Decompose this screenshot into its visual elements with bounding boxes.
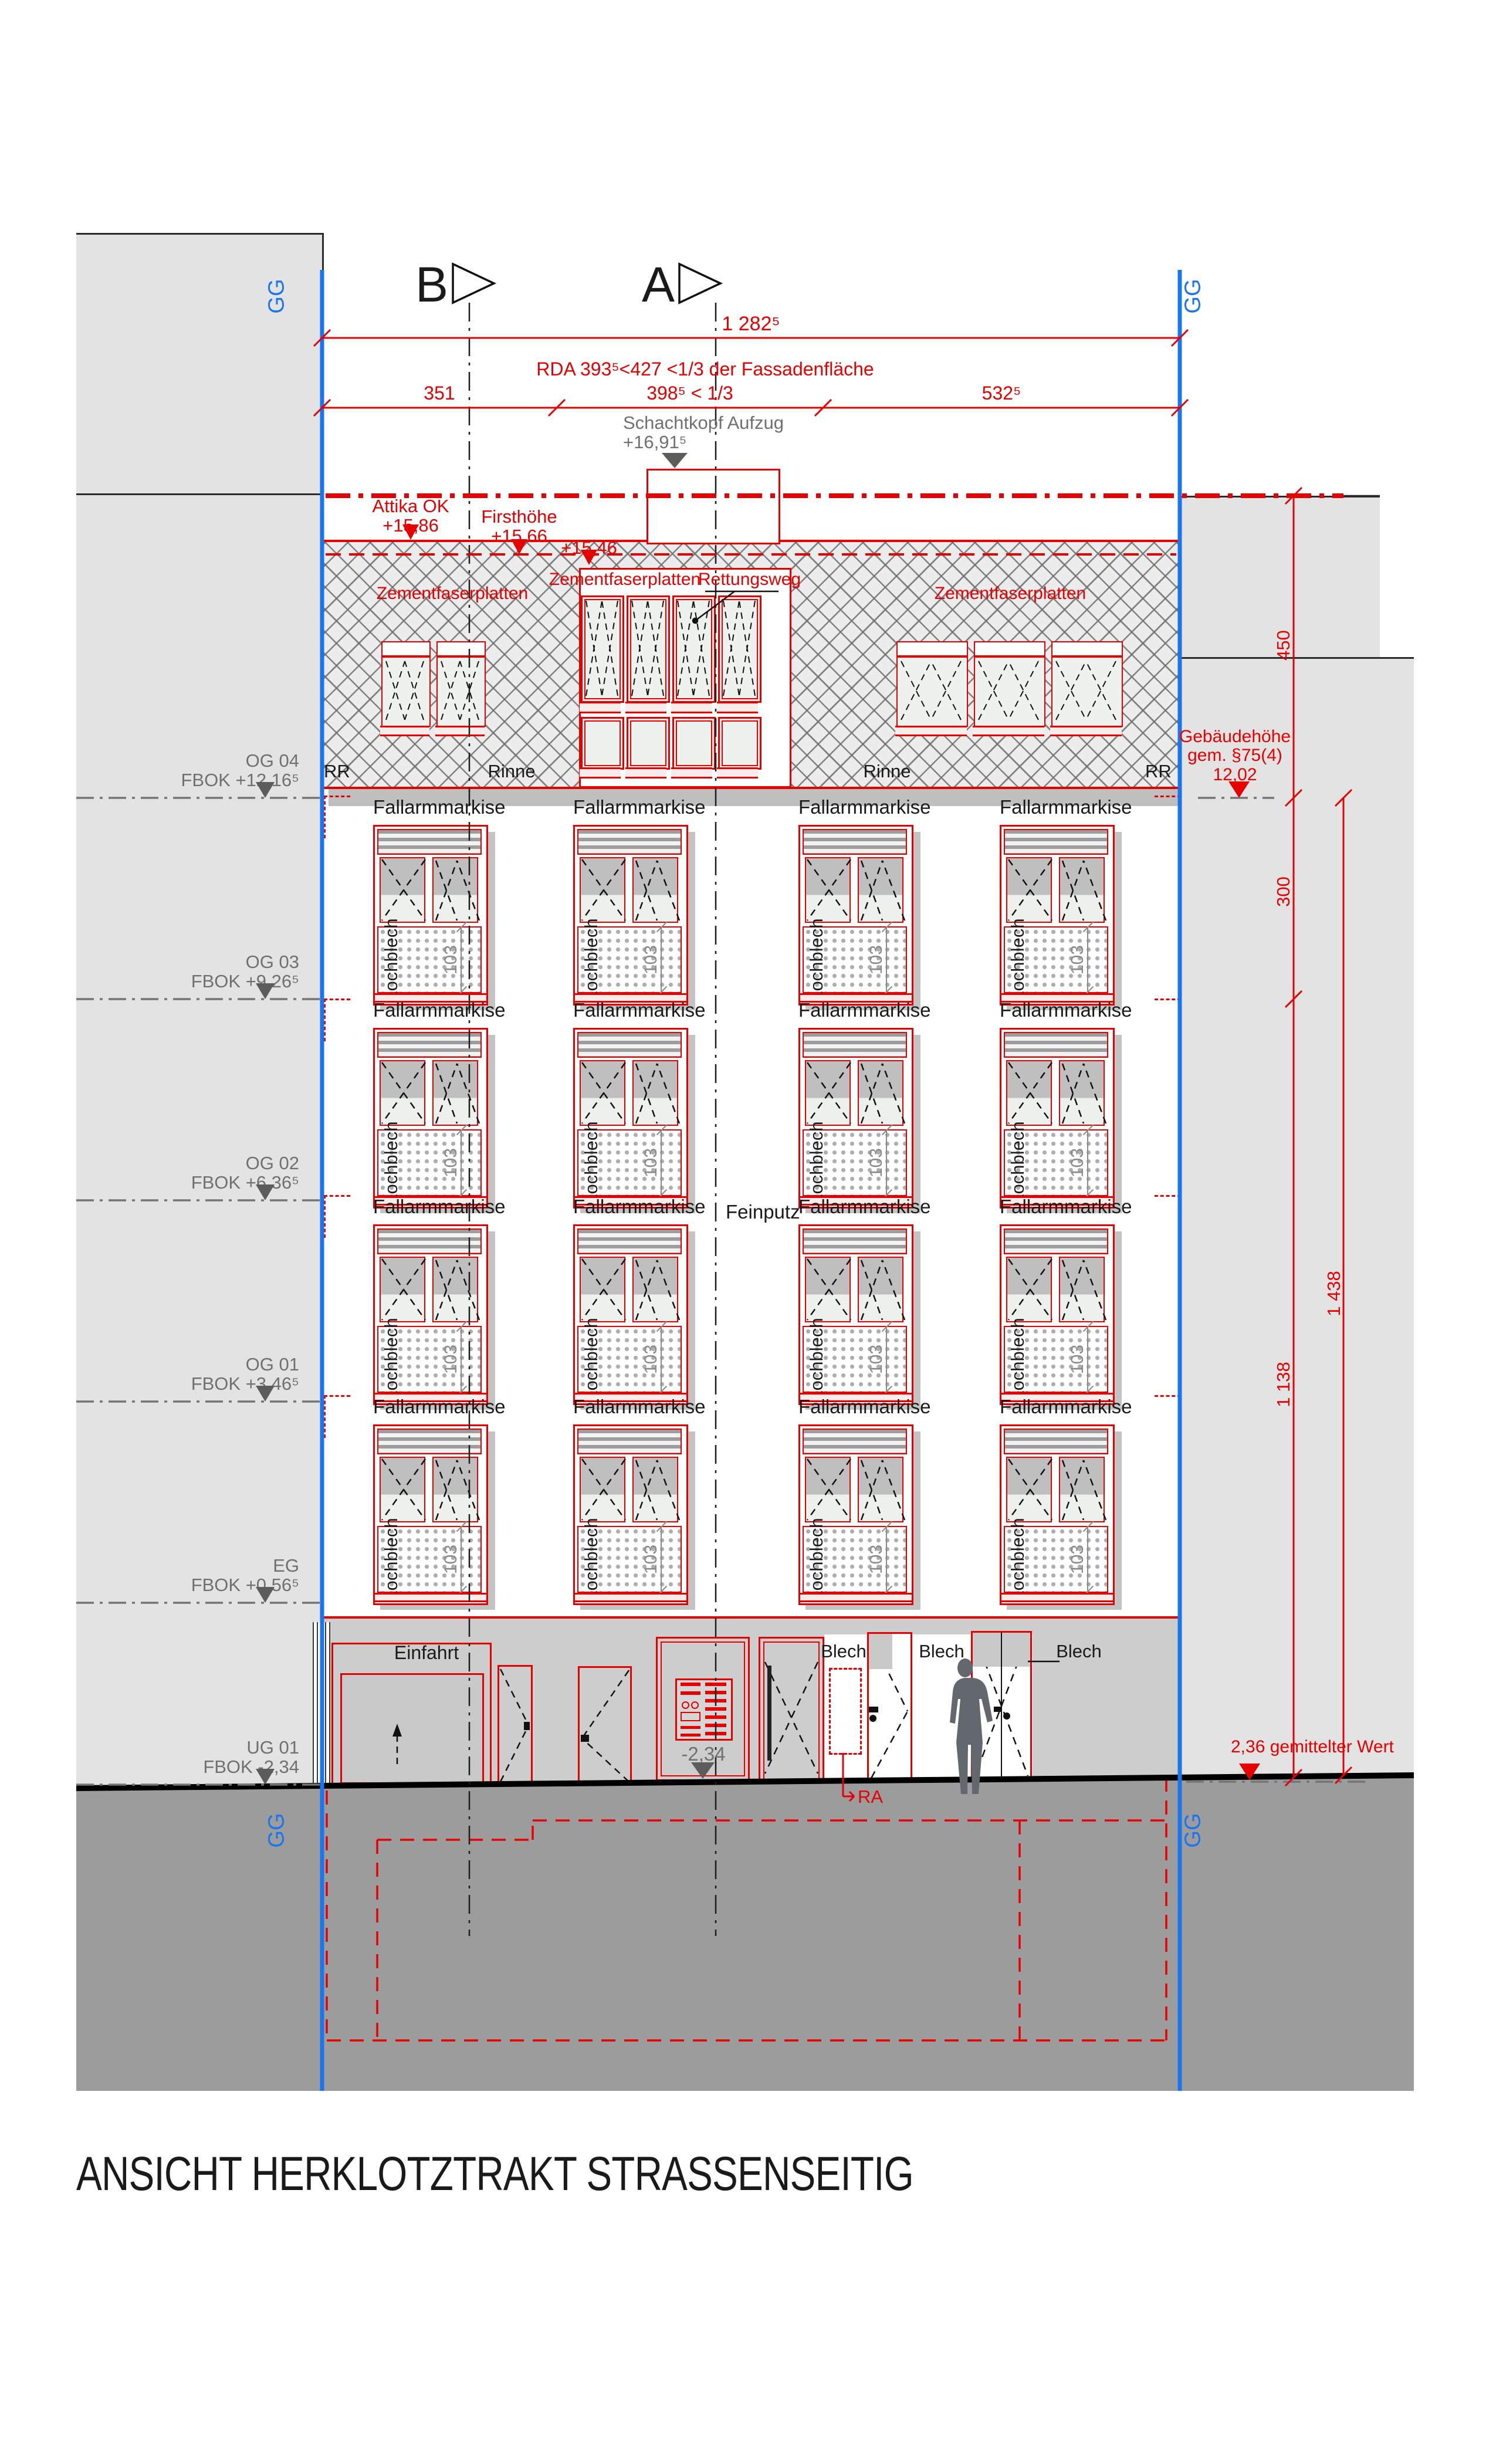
section-marker-b-icon	[453, 264, 494, 303]
dim-1438: 1 438	[1324, 1271, 1345, 1316]
window-dim-label: 103	[641, 1345, 661, 1374]
rr-left-label: RR	[324, 761, 350, 781]
awning-label: Fallarmmarkise	[798, 1000, 913, 1021]
blech-label-1: Blech	[803, 1641, 885, 1661]
perforated-label: Lochblech	[806, 1121, 827, 1204]
perforated-panel: Lochblech 103	[577, 1526, 682, 1593]
dim-rda-note: RDA 393⁵<427 <1/3 der Fassadenfläche	[500, 359, 911, 380]
perforated-panel: Lochblech 103	[577, 926, 682, 993]
opening-symbols-icon	[577, 856, 684, 924]
door-single-2	[578, 1666, 632, 1786]
window-sill	[575, 1593, 686, 1602]
awning-box-icon	[1004, 1429, 1108, 1454]
cladding-left-label: Zementfaserplatten	[364, 584, 540, 603]
facade-window-unit: Fallarmmarkise Lochblech 103	[798, 797, 913, 1006]
awning-box-icon	[377, 1429, 482, 1454]
level-eave: +15,46	[530, 538, 648, 557]
awning-label: Fallarmmarkise	[798, 1396, 913, 1417]
window-dim-label: 103	[441, 1545, 461, 1574]
grid-label-bottom-left: GG	[265, 1813, 290, 1847]
awning-label: Fallarmmarkise	[1000, 1396, 1115, 1417]
opening-symbols-icon	[377, 856, 484, 924]
awning-label: Fallarmmarkise	[573, 1396, 688, 1417]
window-box: Lochblech 103	[573, 1224, 688, 1405]
awning-box-icon	[577, 1032, 682, 1058]
facade-window-unit: Fallarmmarkise Lochblech 103	[373, 797, 488, 1006]
awning-box-icon	[577, 829, 682, 855]
awning-box-icon	[377, 829, 482, 855]
facade-window-unit: Fallarmmarkise Lochblech 103	[573, 1396, 688, 1605]
window-dim-label: 103	[1068, 1545, 1088, 1574]
perforated-label: Lochblech	[1007, 1518, 1028, 1600]
perforated-panel: Lochblech 103	[577, 1326, 682, 1393]
section-letter-b: B	[411, 258, 448, 312]
neighbour-left-parapet-line	[76, 493, 322, 495]
window-dim-label: 103	[641, 1148, 661, 1177]
window-box: Lochblech 103	[373, 1224, 488, 1405]
floor-marker: UG 01 FBOK -2,34	[88, 1738, 323, 1787]
facade-window-unit: Fallarmmarkise Lochblech 103	[1000, 1196, 1115, 1405]
opening-symbols-icon	[803, 856, 909, 924]
perforated-panel: Lochblech 103	[1004, 1526, 1108, 1593]
facade-window-unit: Fallarmmarkise Lochblech 103	[373, 1396, 488, 1605]
facade-window-unit: Fallarmmarkise Lochblech 103	[373, 1000, 488, 1209]
perforated-label: Lochblech	[581, 1318, 602, 1400]
window-dim-label: 103	[441, 1148, 461, 1177]
window-dim-label: 103	[1068, 945, 1088, 974]
attic-center-window	[672, 595, 715, 777]
awning-label: Fallarmmarkise	[798, 1196, 913, 1217]
window-dim-label: 103	[641, 945, 661, 974]
attic-center-window	[581, 595, 623, 777]
awning-box-icon	[803, 1032, 907, 1058]
dim-seg-right: 532⁵	[913, 383, 1089, 404]
perforated-panel: Lochblech 103	[377, 926, 482, 993]
window-box: Lochblech 103	[798, 1424, 913, 1605]
perforated-panel: Lochblech 103	[377, 1526, 482, 1593]
ra-label: RA	[858, 1787, 883, 1806]
window-box: Lochblech 103	[373, 825, 488, 1006]
level-attika: Attika OK +15,86	[352, 496, 469, 536]
facade-window-unit: Fallarmmarkise Lochblech 103	[573, 1196, 688, 1405]
facade-window-unit: Fallarmmarkise Lochblech 103	[1000, 797, 1115, 1006]
dim-seg-left: 351	[381, 383, 498, 404]
shaft-head-label: Schachtkopf Aufzug +16,91⁵	[623, 413, 784, 452]
letterbox-panel	[675, 1678, 733, 1741]
section-letter-a: A	[637, 258, 675, 312]
perforated-label: Lochblech	[381, 1318, 402, 1400]
floor-level-triangle	[256, 983, 275, 999]
garage-door	[340, 1673, 484, 1784]
attic-window	[436, 641, 486, 736]
entry-label: Einfahrt	[368, 1643, 485, 1663]
perforated-label: Lochblech	[1007, 918, 1028, 1001]
opening-symbols-icon	[1004, 1059, 1111, 1127]
awning-box-icon	[1004, 1228, 1108, 1254]
window-dim-label: 103	[1068, 1148, 1088, 1177]
window-dim-label: 103	[441, 1345, 461, 1374]
opening-symbols-icon	[1004, 1456, 1111, 1524]
floor-marker: OG 01 FBOK +3,46⁵	[88, 1355, 323, 1404]
opening-symbols-icon	[577, 1456, 684, 1524]
facade-window-unit: Fallarmmarkise Lochblech 103	[1000, 1396, 1115, 1605]
floor-level-triangle	[256, 1184, 275, 1200]
floor-marker: OG 04 FBOK +12,16⁵	[88, 751, 323, 800]
awning-box-icon	[803, 829, 907, 855]
floor-edge-mark	[1155, 999, 1181, 1041]
perforated-label: Lochblech	[806, 918, 827, 1001]
awning-box-icon	[377, 1032, 482, 1058]
window-box: Lochblech 103	[373, 1028, 488, 1209]
awning-label: Fallarmmarkise	[373, 1196, 488, 1217]
perforated-label: Lochblech	[381, 1121, 402, 1204]
awning-label: Fallarmmarkise	[573, 1196, 688, 1217]
window-box: Lochblech 103	[573, 1424, 688, 1605]
dim-seg-mid: 398⁵ < 1/3	[602, 383, 778, 404]
blech-label-3: Blech	[1038, 1641, 1120, 1661]
attic-center-window	[627, 595, 669, 777]
window-dim-label: 103	[641, 1545, 661, 1574]
floor-level-triangle	[256, 782, 275, 798]
window-dim-label: 103	[867, 1545, 886, 1574]
neighbour-building-right-lower	[1180, 657, 1414, 1779]
facade-window-unit: Fallarmmarkise Lochblech 103	[798, 1000, 913, 1209]
page-title: ANSICHT HERKLOTZTRAKT STRASSENSEITIG	[76, 2148, 913, 2201]
window-box: Lochblech 103	[798, 825, 913, 1006]
grid-label-top-right: GG	[1181, 279, 1206, 313]
attic-window	[1051, 641, 1123, 736]
basement-outline	[327, 1778, 1166, 2040]
window-box: Lochblech 103	[1000, 1028, 1115, 1209]
elevator-shaft-head	[647, 469, 780, 544]
attic-window	[974, 641, 1045, 736]
gutter-left-label: Rinne	[476, 761, 547, 781]
facade-window-unit: Fallarmmarkise Lochblech 103	[573, 797, 688, 1006]
perforated-label: Lochblech	[806, 1518, 827, 1600]
dim-450: 450	[1273, 630, 1294, 661]
window-box: Lochblech 103	[573, 1028, 688, 1209]
perforated-panel: Lochblech 103	[803, 1526, 907, 1593]
floor-level-triangle	[256, 1587, 275, 1603]
perforated-panel: Lochblech 103	[1004, 1129, 1108, 1196]
awning-box-icon	[577, 1429, 682, 1454]
floor-edge-mark	[324, 999, 350, 1041]
window-box: Lochblech 103	[1000, 1424, 1115, 1605]
facade-window-unit: Fallarmmarkise Lochblech 103	[373, 1196, 488, 1405]
perforated-panel: Lochblech 103	[803, 1326, 907, 1393]
floor-marker: OG 03 FBOK +9,26⁵	[88, 952, 323, 1001]
floor-edge-mark	[324, 1395, 350, 1438]
dim-total: 1 282⁵	[663, 313, 839, 335]
awning-box-icon	[1004, 1032, 1108, 1058]
attic-window	[896, 641, 968, 736]
opening-symbols-icon	[1004, 1255, 1111, 1324]
floor-edge-mark	[324, 796, 350, 838]
facade-window-unit: Fallarmmarkise Lochblech 103	[798, 1196, 913, 1405]
opening-symbols-icon	[803, 1255, 909, 1324]
perforated-label: Lochblech	[381, 1518, 402, 1600]
awning-label: Fallarmmarkise	[573, 1000, 688, 1021]
dim-300: 300	[1273, 876, 1294, 907]
floor-edge-mark	[1155, 1395, 1181, 1438]
perforated-label: Lochblech	[1007, 1318, 1028, 1400]
plaster-label: Feinputz	[726, 1201, 800, 1223]
opening-symbols-icon	[377, 1456, 484, 1524]
building-height-label: Gebäudehöhe gem. §75(4) 12,02	[1165, 727, 1305, 784]
window-dim-label: 103	[441, 945, 461, 974]
awning-label: Fallarmmarkise	[1000, 797, 1115, 818]
floor-edge-mark	[1155, 796, 1181, 838]
grid-label-bottom-right: GG	[1181, 1813, 1206, 1847]
opening-symbols-icon	[803, 1456, 909, 1524]
awning-box-icon	[803, 1228, 907, 1254]
window-box: Lochblech 103	[1000, 1224, 1115, 1405]
facade-window-unit: Fallarmmarkise Lochblech 103	[573, 1000, 688, 1209]
floor-edge-mark	[1155, 1195, 1181, 1238]
cladding-right-label: Zementfaserplatten	[922, 584, 1098, 603]
window-sill	[1001, 1593, 1113, 1602]
eg-level-label: -2,34	[656, 1744, 750, 1765]
awning-label: Fallarmmarkise	[373, 1000, 488, 1021]
perforated-panel: Lochblech 103	[803, 926, 907, 993]
perforated-panel: Lochblech 103	[803, 1129, 907, 1196]
floor-level-triangle	[256, 1769, 275, 1785]
awning-box-icon	[377, 1228, 482, 1254]
perforated-label: Lochblech	[581, 1518, 602, 1600]
grid-label-top-left: GG	[265, 279, 290, 313]
perforated-label: Lochblech	[806, 1318, 827, 1400]
door-swing-icon	[580, 1668, 630, 1784]
window-dim-label: 103	[867, 1148, 886, 1177]
awning-label: Fallarmmarkise	[1000, 1000, 1115, 1021]
rescue-route-label: Rettungsweg	[698, 570, 786, 589]
awning-box-icon	[577, 1228, 682, 1254]
awning-label: Fallarmmarkise	[373, 1396, 488, 1417]
cladding-center-label: Zementfaserplatten	[540, 570, 710, 589]
window-box: Lochblech 103	[798, 1224, 913, 1405]
window-sill	[375, 1593, 486, 1602]
attic-window	[381, 641, 431, 736]
gutter-right-label: Rinne	[852, 761, 922, 781]
window-dim-label: 103	[1068, 1345, 1088, 1374]
opening-symbols-icon	[577, 1059, 684, 1127]
floor-edge-mark	[324, 1195, 350, 1238]
ra-niche	[829, 1668, 862, 1755]
perforated-panel: Lochblech 103	[1004, 926, 1108, 993]
perforated-panel: Lochblech 103	[1004, 1326, 1108, 1393]
blech-label-2: Blech	[901, 1641, 983, 1661]
ground-note-label: 2,36 gemittelter Wert	[1231, 1738, 1394, 1756]
window-box: Lochblech 103	[798, 1028, 913, 1209]
dim-1138: 1 138	[1273, 1362, 1294, 1407]
door-single-1	[497, 1665, 533, 1786]
window-sill	[800, 1593, 912, 1602]
perforated-label: Lochblech	[581, 918, 602, 1001]
floor-marker: OG 02 FBOK +6,36⁵	[88, 1153, 323, 1203]
door-pull-bar	[767, 1666, 771, 1761]
awning-label: Fallarmmarkise	[373, 797, 488, 818]
window-box: Lochblech 103	[573, 825, 688, 1006]
elevation-drawing: Fallarmmarkise Lochblech 103	[0, 0, 1496, 2464]
perforated-panel: Lochblech 103	[577, 1129, 682, 1196]
window-box: Lochblech 103	[1000, 825, 1115, 1006]
opening-symbols-icon	[1004, 856, 1111, 924]
facade-window-unit: Fallarmmarkise Lochblech 103	[798, 1396, 913, 1605]
perforated-panel: Lochblech 103	[377, 1326, 482, 1393]
perforated-label: Lochblech	[581, 1121, 602, 1204]
perforated-label: Lochblech	[381, 918, 402, 1001]
window-dim-label: 103	[867, 945, 886, 974]
facade-window-unit: Fallarmmarkise Lochblech 103	[1000, 1000, 1115, 1209]
floor-marker: EG FBOK +0,56⁵	[88, 1556, 323, 1605]
perforated-label: Lochblech	[1007, 1121, 1028, 1204]
awning-label: Fallarmmarkise	[798, 797, 913, 818]
door-swing-icon	[499, 1667, 531, 1784]
perforated-panel: Lochblech 103	[377, 1129, 482, 1196]
floor-level-triangle	[256, 1386, 275, 1402]
opening-symbols-icon	[377, 1255, 484, 1324]
section-marker-a-icon	[679, 264, 720, 303]
opening-symbols-icon	[577, 1255, 684, 1324]
awning-box-icon	[803, 1429, 907, 1454]
opening-symbols-icon	[803, 1059, 909, 1127]
awning-label: Fallarmmarkise	[573, 797, 688, 818]
awning-box-icon	[1004, 829, 1108, 855]
window-box: Lochblech 103	[373, 1424, 488, 1605]
window-dim-label: 103	[867, 1345, 886, 1374]
attic-center-window	[718, 595, 760, 777]
opening-symbols-icon	[377, 1059, 484, 1127]
awning-label: Fallarmmarkise	[1000, 1196, 1115, 1217]
